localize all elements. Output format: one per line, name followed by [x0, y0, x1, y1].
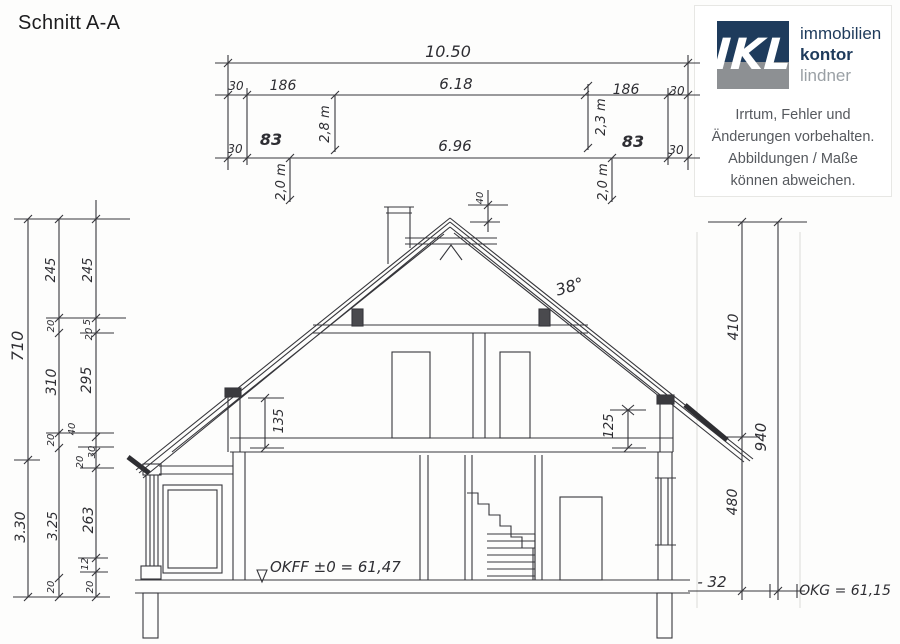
dim-leftmid-310: 310 — [44, 369, 60, 396]
dim-leftin-20a: 20 — [84, 328, 95, 341]
scanned-section-drawing-page: Schnitt A-A IKL immobilien kontor lindne… — [0, 0, 900, 644]
dim-height-23m: 2,3 m — [594, 98, 609, 135]
dim-leftmid-20b: 20 — [46, 434, 57, 447]
left-chain-ticks — [13, 219, 130, 597]
ground-wall-interior-b — [465, 455, 472, 580]
right-chain-slashes — [738, 218, 782, 595]
right-chain-lines — [742, 222, 778, 600]
dim-leftin-30: 30 — [87, 446, 98, 459]
floor-slab — [135, 580, 690, 593]
ground-wall-left — [233, 452, 245, 580]
upper-center-wall — [473, 333, 485, 438]
roof-left-slope — [136, 218, 450, 478]
knee-wall-left — [228, 396, 240, 452]
dim-row3-83-right: 83 — [622, 132, 644, 151]
dim-left-710: 710 — [8, 331, 27, 362]
dim-knee-left: 135 — [272, 409, 287, 434]
upper-door-right — [500, 352, 530, 438]
dim-right-940: 940 — [752, 423, 770, 452]
dim-row3-83-left: 83 — [260, 130, 282, 149]
scan-artifact-lines — [697, 232, 800, 608]
dim-leftmid-20a: 20 — [46, 320, 57, 333]
dim-height-28m: 2,8 m — [318, 105, 333, 142]
staircase-treads — [487, 534, 535, 580]
level-okg: OKG = 61,15 — [799, 583, 891, 599]
dim-leftin-5: 5 — [82, 319, 93, 325]
dim-row2-618: 6.18 — [439, 75, 472, 93]
chimney — [384, 207, 414, 264]
porch-window-outer — [163, 485, 222, 573]
dim-left-330: 3.30 — [13, 511, 29, 542]
dim-row2-30-right: 30 — [669, 84, 685, 98]
dim-row2-186-right: 186 — [613, 82, 640, 98]
right-dimension-chains — [688, 218, 807, 600]
dim-right-480: 480 — [725, 489, 741, 516]
knee-wall-right — [660, 404, 673, 452]
ceiling-post-right — [539, 309, 550, 326]
dim-leftin-245: 245 — [81, 258, 96, 283]
dim-leftin-40: 40 — [67, 423, 78, 436]
dim-leftmid-245: 245 — [44, 258, 59, 283]
upper-door-left — [392, 352, 430, 438]
dim-roof-angle: 38° — [553, 274, 585, 300]
dim-leftin-20c: 20 — [85, 581, 96, 594]
dim-leftmid-325: 3.25 — [46, 512, 61, 541]
dim-right-410: 410 — [726, 314, 742, 341]
attic-floor-band — [230, 438, 673, 452]
dim-leftin-20b: 20 — [75, 456, 86, 469]
porch-beam — [159, 466, 233, 474]
porch-post — [146, 475, 158, 566]
staircase-steps — [467, 493, 533, 580]
porch-post-base — [141, 566, 161, 579]
left-dimension-chains — [13, 200, 130, 601]
dim-leftin-12: 12 — [80, 558, 91, 571]
purlin-left — [225, 388, 241, 397]
roof-eave-tail-right — [685, 405, 727, 440]
dim-ridge-marks — [468, 190, 508, 232]
dim-height-20m-left: 2,0 m — [274, 163, 289, 200]
roof-eave-tail-left — [128, 457, 149, 473]
dim-leftmid-20c: 20 — [46, 581, 57, 594]
dim-row3-30-left: 30 — [227, 142, 243, 156]
foundation-pier-left — [143, 593, 158, 638]
dim-total-width: 10.50 — [425, 42, 471, 61]
level-okff: OKFF ±0 = 61,47 — [270, 558, 401, 576]
dim-row3-30-right: 30 — [668, 143, 684, 157]
right-chain-ticks — [688, 222, 807, 598]
dim-knee-right: 125 — [602, 414, 617, 439]
dim-row2-30-left: 30 — [228, 79, 244, 93]
section-drawing: 10.50 30 186 6.18 186 30 30 83 6.96 83 3… — [0, 0, 900, 644]
dim-row3-696: 6.96 — [438, 137, 471, 155]
dim-row2-186-left: 186 — [270, 78, 297, 94]
dim-leftin-295: 295 — [79, 367, 95, 394]
house-section — [128, 190, 753, 638]
porch-window-inner — [168, 490, 217, 568]
ground-wall-interior-a — [420, 455, 428, 580]
dim-height-20m-right: 2,0 m — [596, 163, 611, 200]
ground-wall-stair-right — [535, 455, 542, 580]
foundation-pier-right — [657, 593, 672, 638]
ground-door — [560, 497, 602, 580]
dim-ridge-40: 40 — [475, 192, 486, 205]
dim-level-offset: - 32 — [697, 573, 726, 591]
ground-wall-right — [658, 452, 672, 580]
purlin-right — [657, 395, 674, 404]
ceiling-post-left — [352, 309, 363, 326]
dim-leftin-263: 263 — [81, 507, 97, 534]
